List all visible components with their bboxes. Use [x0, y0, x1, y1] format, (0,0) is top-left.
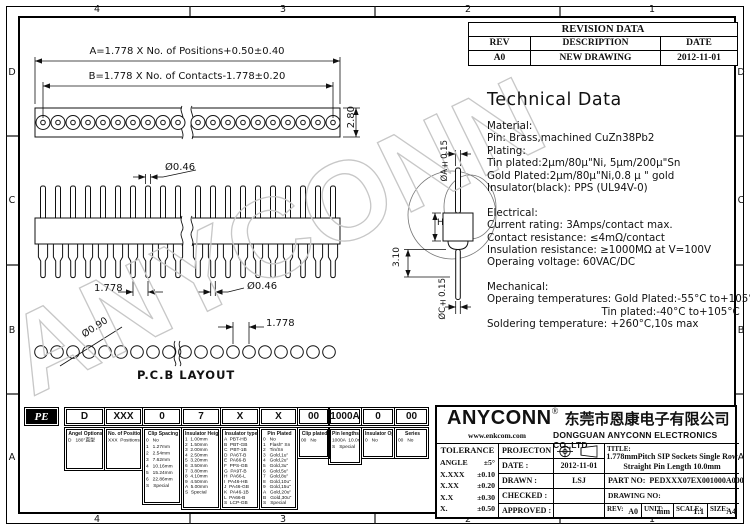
tolerance-row: X.XXX ±0.10 — [437, 469, 498, 481]
projection-symbol-cell — [554, 443, 605, 458]
legend-pin-plated: Pin Plated 0 No1 Flash" Sn2 Tin/Sn3 Gold… — [261, 429, 296, 508]
code-box-insulator-option: 0 — [363, 409, 393, 424]
revision-col-rev: REV — [469, 37, 531, 50]
date-value: 2012-11-01 — [554, 458, 605, 473]
zone-row-left: A — [7, 452, 17, 463]
tolerance-range: ANGLE — [440, 457, 468, 469]
tolerance-rows: ANGLE ±5° X.XXX ±0.10 X.XX ±0.20 X.X ±0.… — [437, 457, 498, 515]
legend-clip-plated: Clip plated 00 No — [299, 429, 328, 457]
code-box-angle: D — [66, 409, 103, 424]
series-prefix-box: PE — [26, 409, 57, 424]
dim-overall-length-label: A=1.778 X No. of Positions+0.50±0.40 — [55, 46, 319, 57]
rev-label: REV: — [607, 505, 623, 513]
tolerance-row: X.X ±0.30 — [437, 492, 498, 504]
dim-tail-length-label: 3.10 — [392, 247, 402, 267]
legend-insulator-option: Insulator Option 0 No — [363, 429, 393, 457]
dim-contact-span-label: B=1.778 X No. of Contacts-1.778±0.20 — [55, 71, 319, 82]
code-box-insulator-height: 7 — [183, 409, 219, 424]
date-label: DATE : — [499, 458, 554, 473]
technical-data-lines: Material:Pin: Brass,machined CuZn38Pb2Pl… — [487, 120, 745, 331]
zone-col-bottom: 3 — [278, 514, 288, 525]
tolerance-cell: TOLERANCE ANGLE ±5° X.XXX ±0.10 X.XX ±0.… — [437, 443, 499, 517]
drawing-title-line1: 1.778mmPitch SIP Sockets Single Row — [605, 452, 739, 462]
tolerance-row: X.XX ±0.20 — [437, 480, 498, 492]
projection-label: PROJECTON — [499, 443, 554, 458]
legend-insulator-type: Insulator type A PBT-HBB PBT-GBC PBT-1BD… — [222, 429, 258, 508]
legend-clip-spacing: Clip Spacing 0 No1 1.27mm2 2.54mm3 7.62m… — [144, 429, 180, 503]
approved-label: APPROVED : — [499, 503, 554, 517]
technical-data-block: Technical Data Material:Pin: Brass,machi… — [487, 90, 745, 331]
code-box-pin-length: 1000A — [330, 409, 360, 424]
dim-oc-tolerance-label: ØC±0.15 — [438, 278, 448, 320]
legend-row: XXX Positions — [108, 437, 141, 444]
legend-row: 00 No — [398, 437, 427, 444]
technical-data-line: Insulator(black): PPS (UL94V-0) — [487, 182, 745, 194]
drawing-title-line2: Straight Pin Length 10.0mm — [605, 462, 739, 472]
checked-label: CHECKED : — [499, 488, 554, 503]
revision-date-value: 2012-11-01 — [661, 51, 737, 65]
tolerance-row: ANGLE ±5° — [437, 457, 498, 469]
tolerance-value: ±0.30 — [477, 492, 495, 504]
company-website: www.enkcom.com — [443, 431, 551, 440]
dim-pin-diameter-top-label: Ø0.46 — [165, 162, 195, 173]
scale-value: 1:1 — [693, 507, 704, 516]
title-cell: TITLE: 1.778mmPitch SIP Sockets Single R… — [605, 443, 739, 473]
legend-row: 0 No — [365, 437, 393, 444]
legend-row: S Special — [332, 444, 360, 451]
technical-data-line: Contact resistance: ≤4mΩ/contact — [487, 232, 745, 244]
drawing-number-cell: DRAWING NO: — [605, 488, 739, 503]
legend-row: D 180°直型 — [68, 437, 103, 444]
revision-rev-value: A0 — [469, 51, 531, 65]
tolerance-range: X.XX — [440, 480, 459, 492]
zone-col-bottom: 4 — [92, 514, 102, 525]
legend-series: Series 00 No — [396, 429, 427, 457]
code-box-positions: XXX — [106, 409, 141, 424]
zone-row-left: D — [7, 67, 17, 78]
technical-data-line: Plating: — [487, 145, 745, 157]
legend-angle-options: Angel Options D 180°直型 — [66, 429, 103, 469]
unit-value: mm — [657, 507, 670, 516]
legend-pin-lengths: Pin lengths(mm) 1000A 10.0mmS Special — [330, 429, 360, 463]
tolerance-range: X. — [440, 503, 448, 515]
technical-data-line — [487, 269, 745, 281]
registered-mark: ® — [552, 406, 559, 416]
company-name-cn: 东莞市恩康电子有限公司 — [564, 408, 729, 429]
revision-table-header-row: REV DESCRIPTION DATE — [469, 37, 737, 50]
company-logo: ANYCONN — [447, 407, 552, 430]
legend-row: S Special — [146, 483, 180, 490]
side-view — [35, 170, 340, 296]
checked-value — [554, 488, 605, 503]
legend-row: S Special — [185, 490, 219, 495]
revision-table-row: A0 NEW DRAWING 2012-11-01 — [469, 50, 737, 65]
revision-table: REVISION DATA REV DESCRIPTION DATE A0 NE… — [468, 22, 738, 66]
technical-data-line: Gold Plated:2μm/80μ"Ni,0.8 μ " gold — [487, 170, 745, 182]
tolerance-title: TOLERANCE — [437, 444, 498, 457]
part-number-cell: PART NO: PEDXXX07EX001000A000 — [605, 473, 739, 488]
revision-table-title: REVISION DATA — [469, 23, 737, 37]
dim-pin-diameter-bottom-label: Ø0.46 — [247, 281, 277, 292]
title-label: TITLE: — [607, 445, 631, 453]
drawn-label: DRAWN : — [499, 473, 554, 488]
technical-data-line: Pin: Brass,machined CuZn38Pb2 — [487, 132, 745, 144]
technical-data-line: Tin plated:2μm/80μ"Ni, 5μm/200μ"Sn — [487, 157, 745, 169]
technical-data-line: Insulation resistance: ≥1000MΩ at V=100V — [487, 244, 745, 256]
legend-row: 00 No — [301, 437, 328, 444]
approved-value — [554, 503, 605, 517]
drawn-value: LSJ — [554, 473, 605, 488]
revision-col-date: DATE — [661, 37, 737, 50]
top-view — [35, 57, 360, 139]
technical-data-line: Mechanical: — [487, 281, 745, 293]
code-box-clip-plated: 00 — [299, 409, 328, 424]
legend-no-of-positions: No. of Positions XXX Positions — [106, 429, 141, 469]
technical-data-line: Soldering temperature: +260°C,10s max — [487, 318, 745, 330]
zone-row-left: C — [7, 195, 17, 206]
scale-cell: SCALE: 1:1 — [674, 503, 708, 517]
tolerance-value: ±5° — [484, 457, 495, 469]
code-box-clip-spacing: 0 — [144, 409, 180, 424]
zone-col-top: 2 — [463, 4, 473, 15]
code-box-series: 00 — [396, 409, 427, 424]
dim-oa-tolerance-label: ØA±0.15 — [440, 140, 450, 181]
pcb-layout-label: P.C.B LAYOUT — [137, 368, 235, 382]
projection-symbol-icon — [556, 445, 602, 458]
title-block: ANYCONN® 东莞市恩康电子有限公司 www.enkcom.com DONG… — [435, 405, 737, 519]
tolerance-value: ±0.10 — [477, 469, 495, 481]
rev-cell: REV: A0 — [605, 503, 642, 517]
zone-row-left: B — [7, 325, 17, 336]
drawing-sheet: ANYCONN 4 3 2 1 4 3 2 1 D C B A D C B A … — [0, 0, 750, 530]
tolerance-range: X.XXX — [440, 469, 464, 481]
technical-data-line: Tin plated:-40°C to+105°C — [487, 306, 745, 318]
tolerance-value: ±0.20 — [477, 480, 495, 492]
code-box-pin-plated: X — [261, 409, 296, 424]
detail-view — [404, 150, 496, 314]
tolerance-range: X.X — [440, 492, 453, 504]
legend-insulator-height: Insulator Height 1 1.00mm2 1.50mm3 2.00m… — [183, 429, 219, 508]
zone-col-top: 3 — [278, 4, 288, 15]
technical-data-line: Electrical: — [487, 207, 745, 219]
technical-data-line: Operaing voltage: 60VAC/DC — [487, 256, 745, 268]
legend-row: S LCP-GB — [224, 501, 258, 506]
technical-data-line: Material: — [487, 120, 745, 132]
dim-pcb-pitch-label: 1.778 — [266, 318, 295, 329]
revision-col-description: DESCRIPTION — [531, 37, 661, 50]
zone-col-top: 1 — [647, 4, 657, 15]
code-box-insulator-type: X — [222, 409, 258, 424]
company-row: ANYCONN® 东莞市恩康电子有限公司 — [437, 407, 735, 429]
technical-data-line — [487, 194, 745, 206]
dim-body-width-label: 2.80 — [346, 106, 357, 128]
unit-cell: UNIT: mm — [642, 503, 674, 517]
zone-col-top: 4 — [92, 4, 102, 15]
tolerance-value: ±0.50 — [477, 503, 495, 515]
dim-pitch-side-label: 1.778 — [94, 283, 123, 294]
zone-row-right: D — [736, 67, 746, 78]
revision-description-value: NEW DRAWING — [531, 51, 661, 65]
legend-row: S Special — [263, 501, 296, 506]
size-value: A4 — [726, 507, 736, 516]
tolerance-row: X. ±0.50 — [437, 503, 498, 515]
size-cell: SIZE: A4 — [708, 503, 739, 517]
technical-data-line: Current rating: 3Amps/contact max. — [487, 219, 745, 231]
technical-data-line: Operaing temperatures: Gold Plated:-55°C… — [487, 293, 745, 305]
dim-body-height-label: H — [437, 218, 444, 228]
technical-data-title: Technical Data — [487, 90, 745, 110]
rev-value: A0 — [628, 507, 638, 516]
